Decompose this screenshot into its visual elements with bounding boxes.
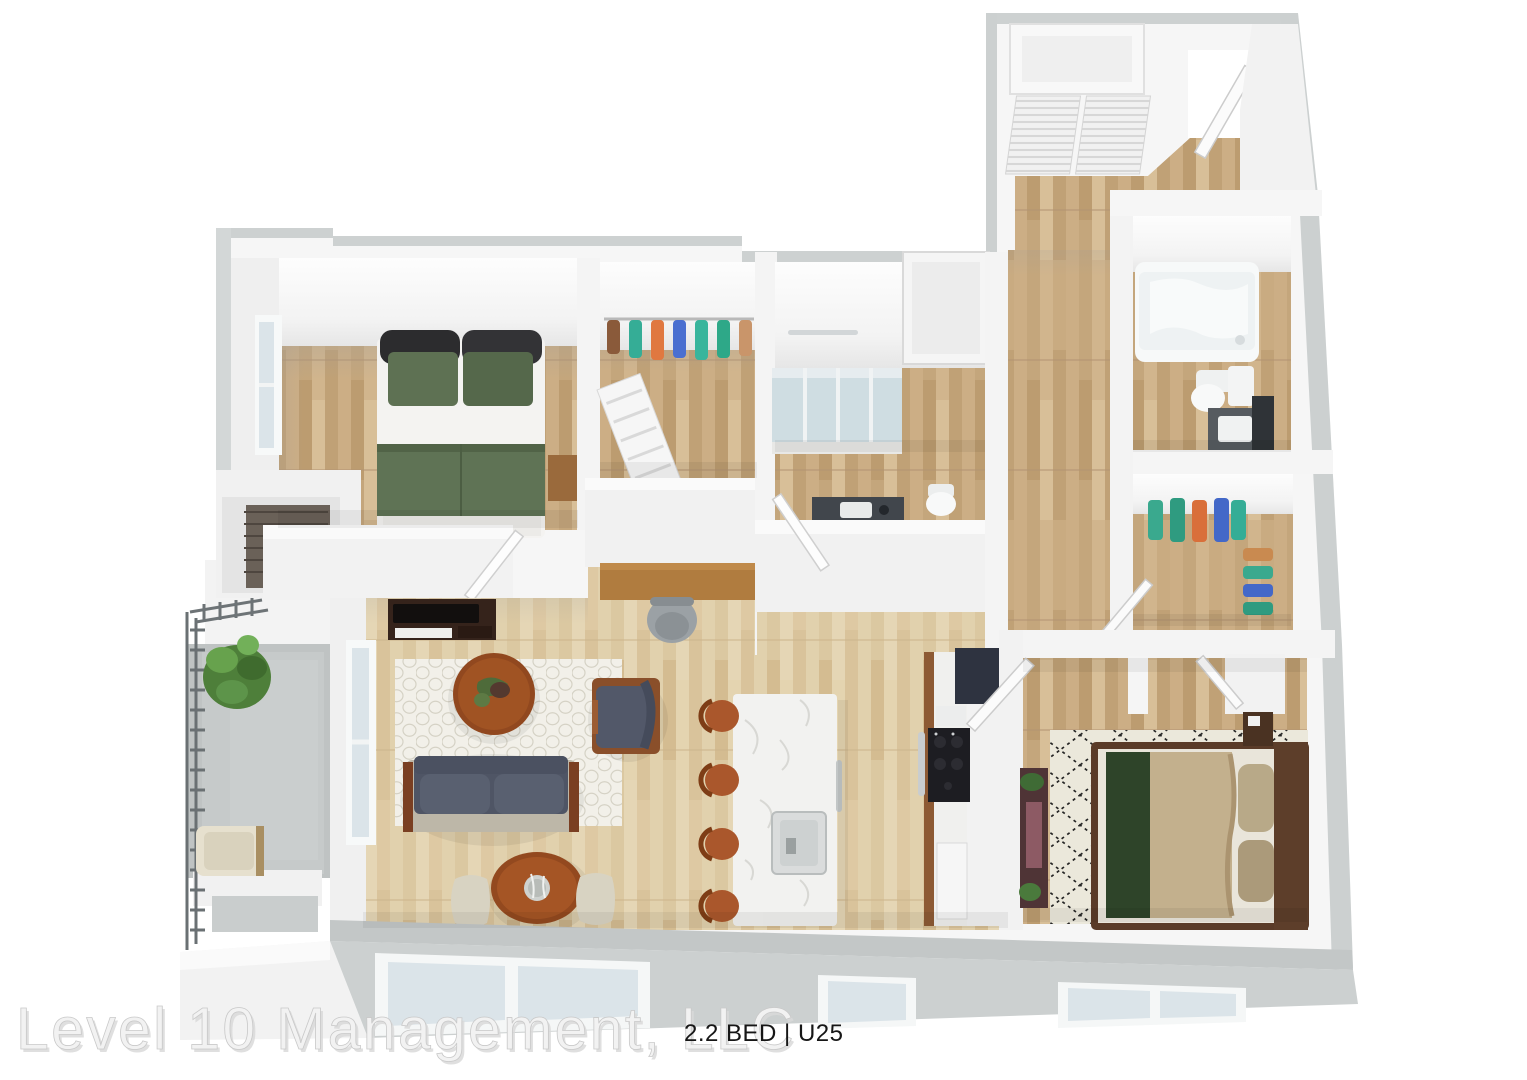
svg-text:2.2 BED | U25: 2.2 BED | U25 <box>684 1020 843 1047</box>
svg-text:Level 10 Management, LLC: Level 10 Management, LLC <box>16 996 796 1062</box>
